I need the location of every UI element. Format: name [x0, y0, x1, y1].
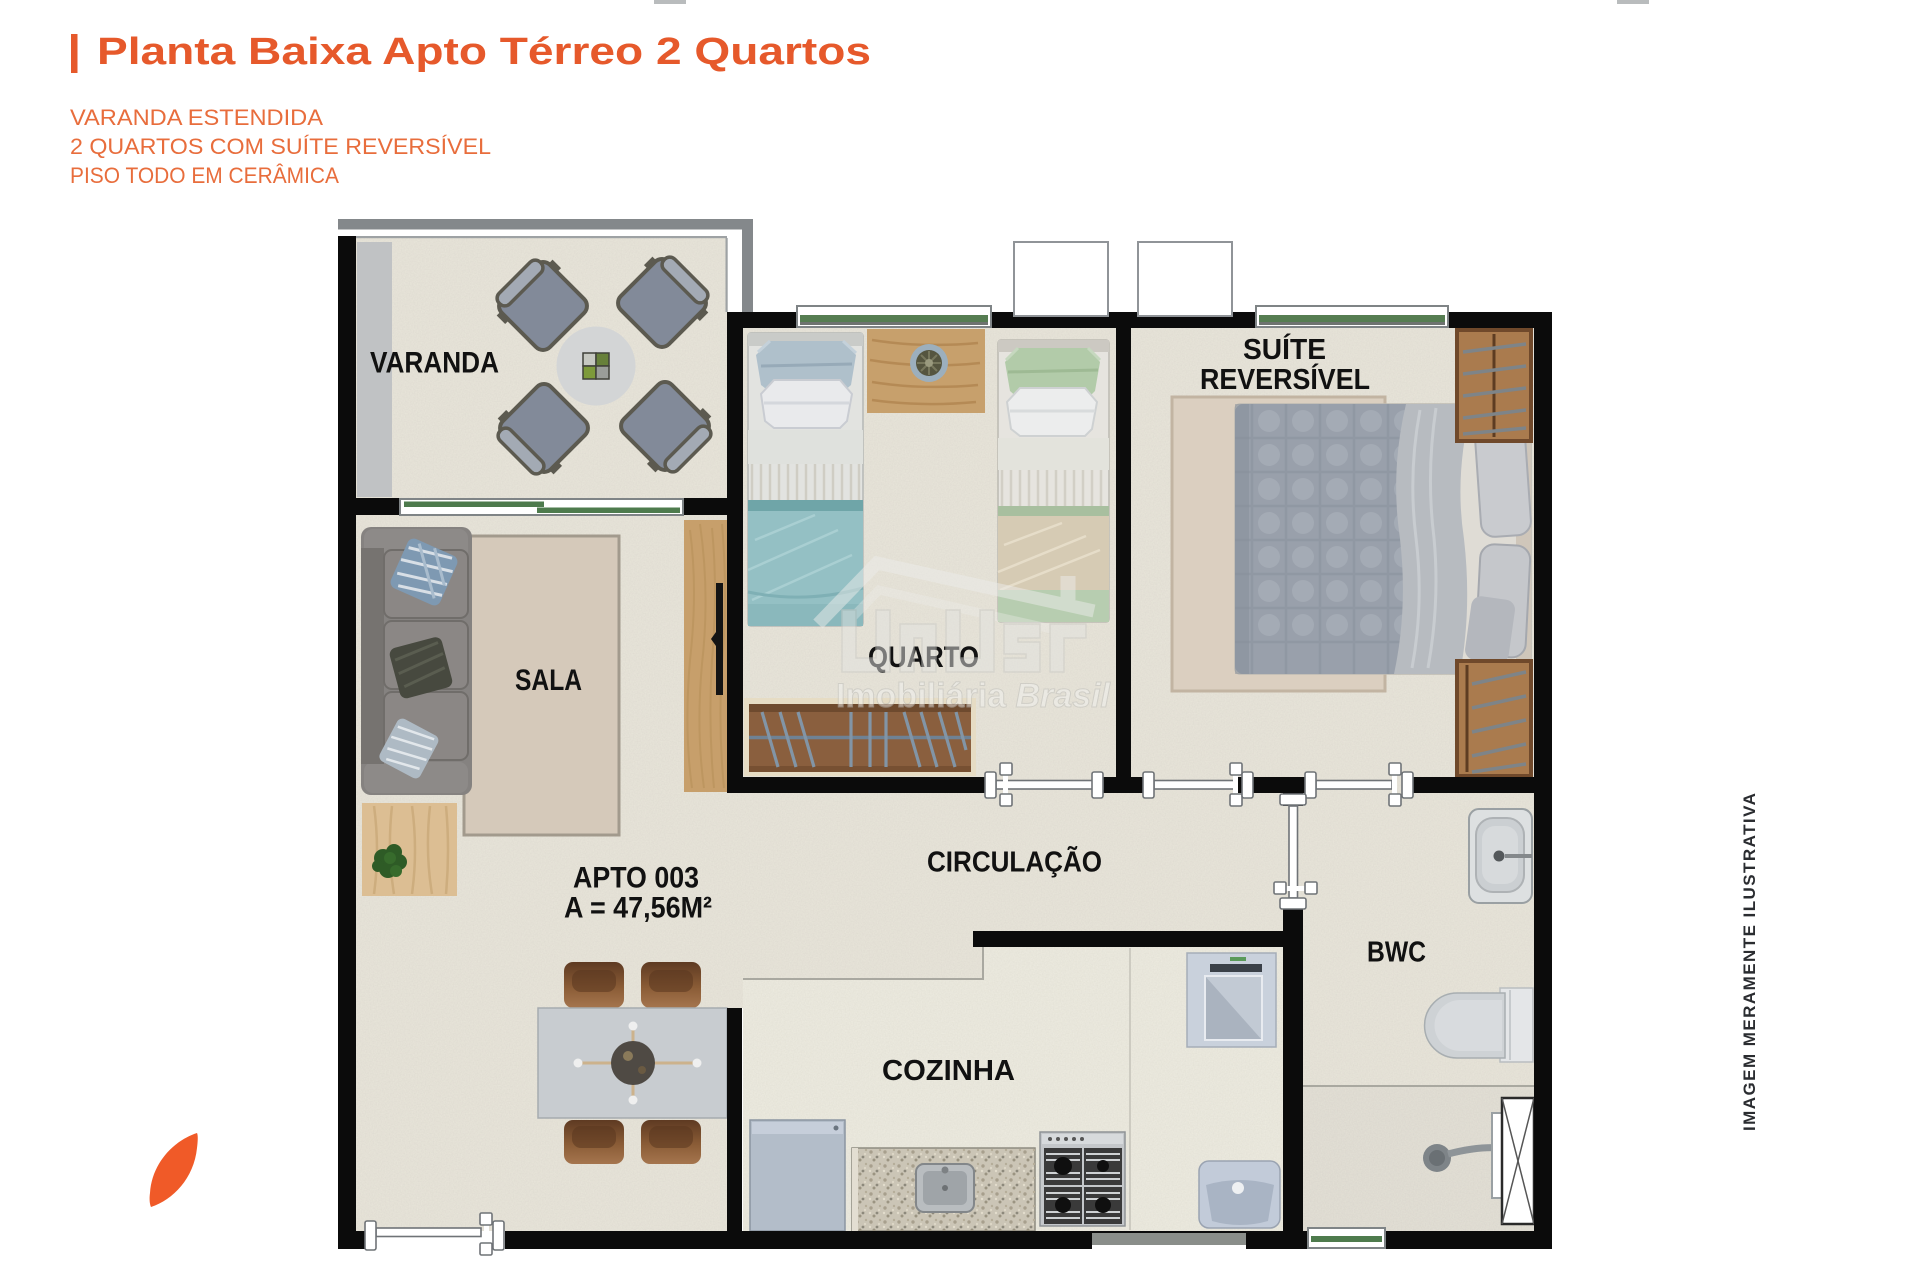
svg-text:2 QUARTOS COM SUÍTE REVERSÍVEL: 2 QUARTOS COM SUÍTE REVERSÍVEL [70, 134, 491, 159]
svg-text:Imobiliária Brasil: Imobiliária Brasil [836, 677, 1112, 715]
svg-text:APTO 003: APTO 003 [573, 862, 699, 895]
svg-text:SALA: SALA [515, 664, 582, 697]
svg-text:VARANDA ESTENDIDA: VARANDA ESTENDIDA [70, 105, 323, 130]
svg-text:PISO TODO EM CERÂMICA: PISO TODO EM CERÂMICA [70, 163, 339, 188]
svg-text:VARANDA: VARANDA [370, 347, 499, 380]
svg-text:COZINHA: COZINHA [882, 1055, 1015, 1087]
svg-text:A = 47,56M²: A = 47,56M² [564, 892, 712, 925]
svg-text:REVERSÍVEL: REVERSÍVEL [1200, 362, 1370, 396]
svg-text:Planta Baixa Apto Térreo 2 Qua: Planta Baixa Apto Térreo 2 Quartos [97, 31, 871, 73]
svg-text:BWC: BWC [1367, 937, 1426, 969]
svg-text:CIRCULAÇÃO: CIRCULAÇÃO [927, 845, 1102, 879]
svg-text:SUÍTE: SUÍTE [1243, 332, 1326, 366]
svg-text:IMAGEM MERAMENTE ILUSTRATIVA: IMAGEM MERAMENTE ILUSTRATIVA [1740, 792, 1759, 1131]
